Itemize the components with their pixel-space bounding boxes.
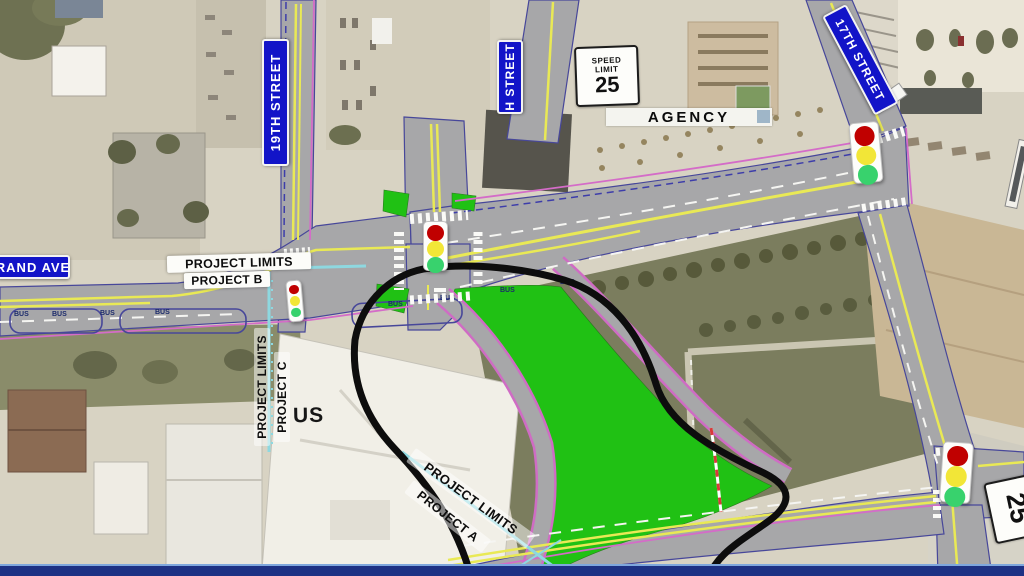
speed-limit-value: 25 — [595, 74, 620, 97]
street-sign-label: RAND AVE — [0, 260, 70, 275]
speed-limit-sign: SPEED LIMIT 25 — [574, 45, 640, 107]
speed-limit-value: 25 — [1002, 490, 1024, 525]
red-light-icon — [854, 125, 875, 146]
street-sign-label: H STREET — [503, 43, 517, 110]
project-name-text: PROJECT C — [275, 361, 289, 432]
green-light-icon — [427, 257, 443, 273]
street-sign-h-street: H STREET — [497, 40, 523, 114]
bus-lane-marking: BUS — [14, 311, 29, 318]
project-limits-text: PROJECT LIMITS — [185, 254, 293, 271]
yellow-light-icon — [856, 145, 877, 166]
project-limits-text: PROJECT LIMITS — [255, 335, 269, 439]
bus-lane-marking: BUS — [100, 310, 115, 317]
aerial-project-map: BUS BUS BUS BUS BUS BUS BUS BUS 19TH STR… — [0, 0, 1024, 576]
street-sign-label: 19TH STREET — [268, 54, 283, 152]
project-b-label: PROJECT B — [184, 271, 270, 289]
yellow-light-icon — [290, 296, 301, 307]
red-light-icon — [947, 445, 969, 467]
bus-lane-marking: BUS — [155, 309, 170, 316]
building-label-text: US — [293, 404, 325, 428]
red-light-icon — [427, 225, 443, 241]
building-label-us: US — [293, 404, 325, 429]
bus-lane-marking: BUS — [388, 301, 403, 308]
signal-17th-north — [848, 121, 883, 184]
yellow-light-icon — [945, 466, 967, 488]
signal-central-intersection — [423, 221, 448, 271]
signal-17th-south — [939, 441, 974, 504]
yellow-light-icon — [427, 241, 443, 257]
street-sign-19th-street: 19TH STREET — [262, 39, 289, 166]
video-banner-edge — [0, 564, 1024, 576]
red-light-icon — [289, 284, 300, 295]
bus-lane-marking: BUS — [500, 287, 515, 294]
project-c-label: PROJECT C — [274, 352, 290, 442]
bus-lane-marking: BUS — [52, 311, 67, 318]
project-limits-c-label: PROJECT LIMITS — [254, 328, 270, 446]
agency-label-marker — [757, 110, 770, 123]
street-sign-grand-ave: RAND AVE — [0, 255, 70, 279]
agency-building-label: AGENCY — [606, 108, 772, 126]
project-name-text: PROJECT B — [191, 272, 263, 288]
agency-label-text: AGENCY — [648, 109, 730, 126]
green-light-icon — [291, 307, 302, 318]
